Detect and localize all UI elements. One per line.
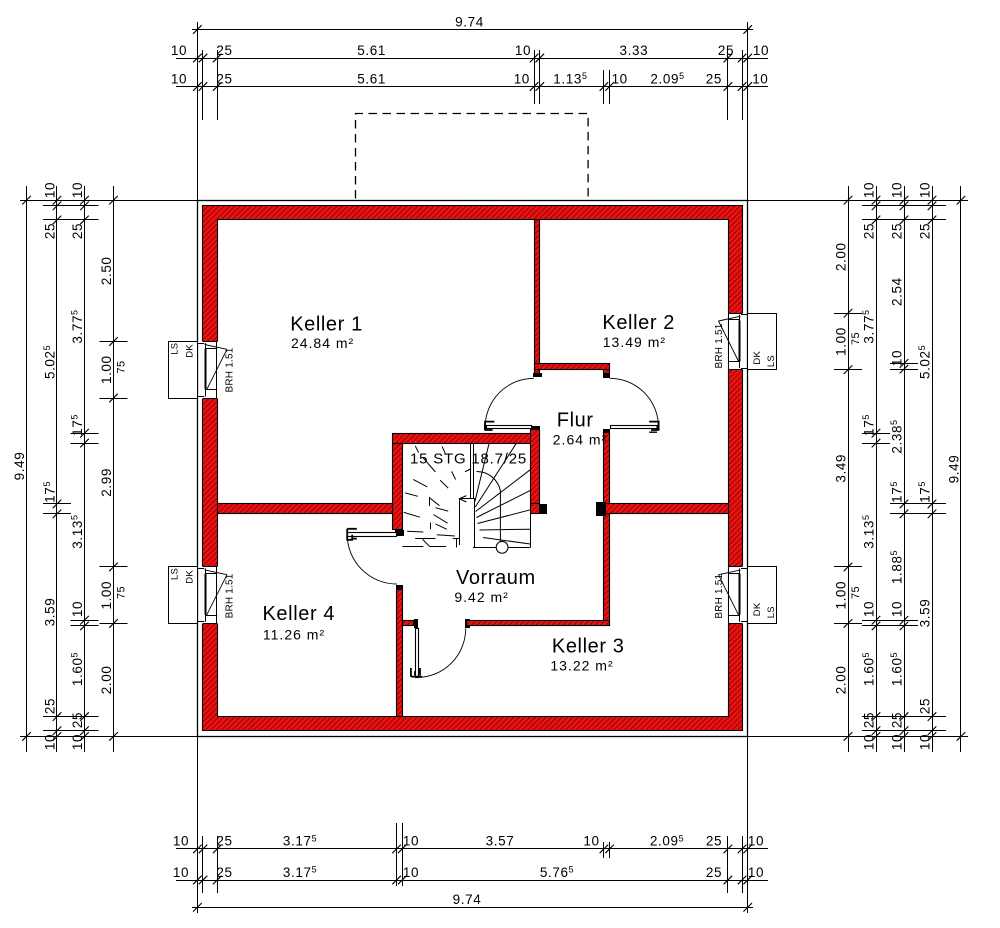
svg-text:1.00: 1.00 <box>834 581 849 610</box>
svg-text:DK: DK <box>185 344 196 358</box>
svg-text:10: 10 <box>862 601 877 617</box>
svg-text:LS: LS <box>169 343 180 355</box>
svg-text:25: 25 <box>862 712 877 728</box>
svg-text:25: 25 <box>706 865 722 880</box>
svg-text:2.64 m²: 2.64 m² <box>553 432 607 448</box>
svg-text:5.61: 5.61 <box>357 71 386 86</box>
svg-text:9.49: 9.49 <box>12 452 27 481</box>
svg-text:LS: LS <box>766 355 777 367</box>
svg-text:1.00: 1.00 <box>99 581 114 610</box>
svg-text:2.00: 2.00 <box>834 242 849 271</box>
svg-text:2.99: 2.99 <box>99 468 114 497</box>
svg-text:25: 25 <box>706 71 722 86</box>
svg-text:BRH 1.51: BRH 1.51 <box>714 573 725 618</box>
svg-text:3.59: 3.59 <box>43 598 58 627</box>
svg-text:5.61: 5.61 <box>357 43 386 58</box>
svg-text:10: 10 <box>612 71 628 86</box>
svg-text:25: 25 <box>43 698 58 714</box>
svg-text:25: 25 <box>216 43 232 58</box>
svg-text:11.26 m²: 11.26 m² <box>263 627 325 643</box>
svg-text:Flur: Flur <box>557 409 594 431</box>
svg-text:10: 10 <box>918 182 933 198</box>
svg-text:25: 25 <box>918 698 933 714</box>
svg-text:75: 75 <box>850 586 862 599</box>
svg-text:3.57: 3.57 <box>486 834 515 849</box>
svg-text:25: 25 <box>216 834 232 849</box>
svg-text:10: 10 <box>752 71 768 86</box>
svg-text:9.74: 9.74 <box>455 15 484 30</box>
svg-text:9.42 m²: 9.42 m² <box>454 589 508 605</box>
svg-text:25: 25 <box>706 834 722 849</box>
svg-text:Keller 2: Keller 2 <box>602 312 675 334</box>
svg-text:3.33: 3.33 <box>620 43 649 58</box>
svg-text:75: 75 <box>116 586 128 599</box>
svg-text:10: 10 <box>748 865 764 880</box>
svg-text:24.84 m²: 24.84 m² <box>291 335 354 351</box>
svg-text:25: 25 <box>890 712 905 728</box>
svg-text:25: 25 <box>890 223 905 239</box>
svg-text:25: 25 <box>862 223 877 239</box>
svg-text:2.00: 2.00 <box>99 666 114 695</box>
svg-text:BRH 1.51: BRH 1.51 <box>225 573 236 618</box>
svg-text:3.59: 3.59 <box>918 599 933 628</box>
svg-text:10: 10 <box>890 182 905 198</box>
svg-text:25: 25 <box>70 223 85 239</box>
svg-text:BRH 1.51: BRH 1.51 <box>225 347 236 392</box>
svg-text:9.74: 9.74 <box>453 892 482 907</box>
svg-text:2.50: 2.50 <box>99 256 114 285</box>
svg-text:Keller 1: Keller 1 <box>290 314 363 336</box>
svg-text:10: 10 <box>753 43 769 58</box>
svg-text:Vorraum: Vorraum <box>456 567 536 589</box>
svg-text:DK: DK <box>185 570 196 584</box>
svg-text:10: 10 <box>173 834 189 849</box>
svg-text:75: 75 <box>850 332 862 345</box>
svg-text:2.00: 2.00 <box>834 666 849 695</box>
svg-text:25: 25 <box>718 43 734 58</box>
svg-text:1.00: 1.00 <box>834 327 849 356</box>
svg-text:25: 25 <box>918 223 933 239</box>
svg-text:10: 10 <box>748 834 764 849</box>
svg-text:10: 10 <box>403 865 419 880</box>
svg-text:10: 10 <box>173 865 189 880</box>
svg-text:10: 10 <box>70 182 85 198</box>
svg-text:2.54: 2.54 <box>890 277 905 306</box>
svg-text:13.22 m²: 13.22 m² <box>550 658 613 674</box>
svg-text:1.00: 1.00 <box>99 355 114 384</box>
svg-text:10: 10 <box>171 71 187 86</box>
svg-text:DK: DK <box>752 351 763 365</box>
svg-text:10: 10 <box>43 182 58 198</box>
svg-text:25: 25 <box>216 865 232 880</box>
svg-text:10: 10 <box>515 43 531 58</box>
svg-text:15 STG 18.7/25: 15 STG 18.7/25 <box>410 451 527 468</box>
svg-text:10: 10 <box>171 43 187 58</box>
svg-text:3.49: 3.49 <box>834 454 849 483</box>
svg-text:LS: LS <box>169 568 180 580</box>
svg-text:10: 10 <box>890 601 905 617</box>
svg-text:10: 10 <box>583 834 599 849</box>
svg-text:75: 75 <box>116 360 128 373</box>
svg-text:9.49: 9.49 <box>947 455 962 484</box>
svg-text:BRH 1.51: BRH 1.51 <box>714 323 725 368</box>
svg-text:LS: LS <box>766 606 777 618</box>
svg-text:25: 25 <box>216 71 232 86</box>
svg-text:10: 10 <box>862 182 877 198</box>
svg-text:10: 10 <box>514 71 530 86</box>
svg-text:13.49 m²: 13.49 m² <box>603 334 666 350</box>
svg-text:25: 25 <box>70 712 85 728</box>
svg-text:DK: DK <box>752 602 763 616</box>
svg-text:10: 10 <box>403 834 419 849</box>
svg-text:25: 25 <box>43 223 58 239</box>
svg-text:Keller 4: Keller 4 <box>262 603 335 625</box>
svg-text:10: 10 <box>70 601 85 617</box>
svg-text:Keller 3: Keller 3 <box>552 635 625 657</box>
